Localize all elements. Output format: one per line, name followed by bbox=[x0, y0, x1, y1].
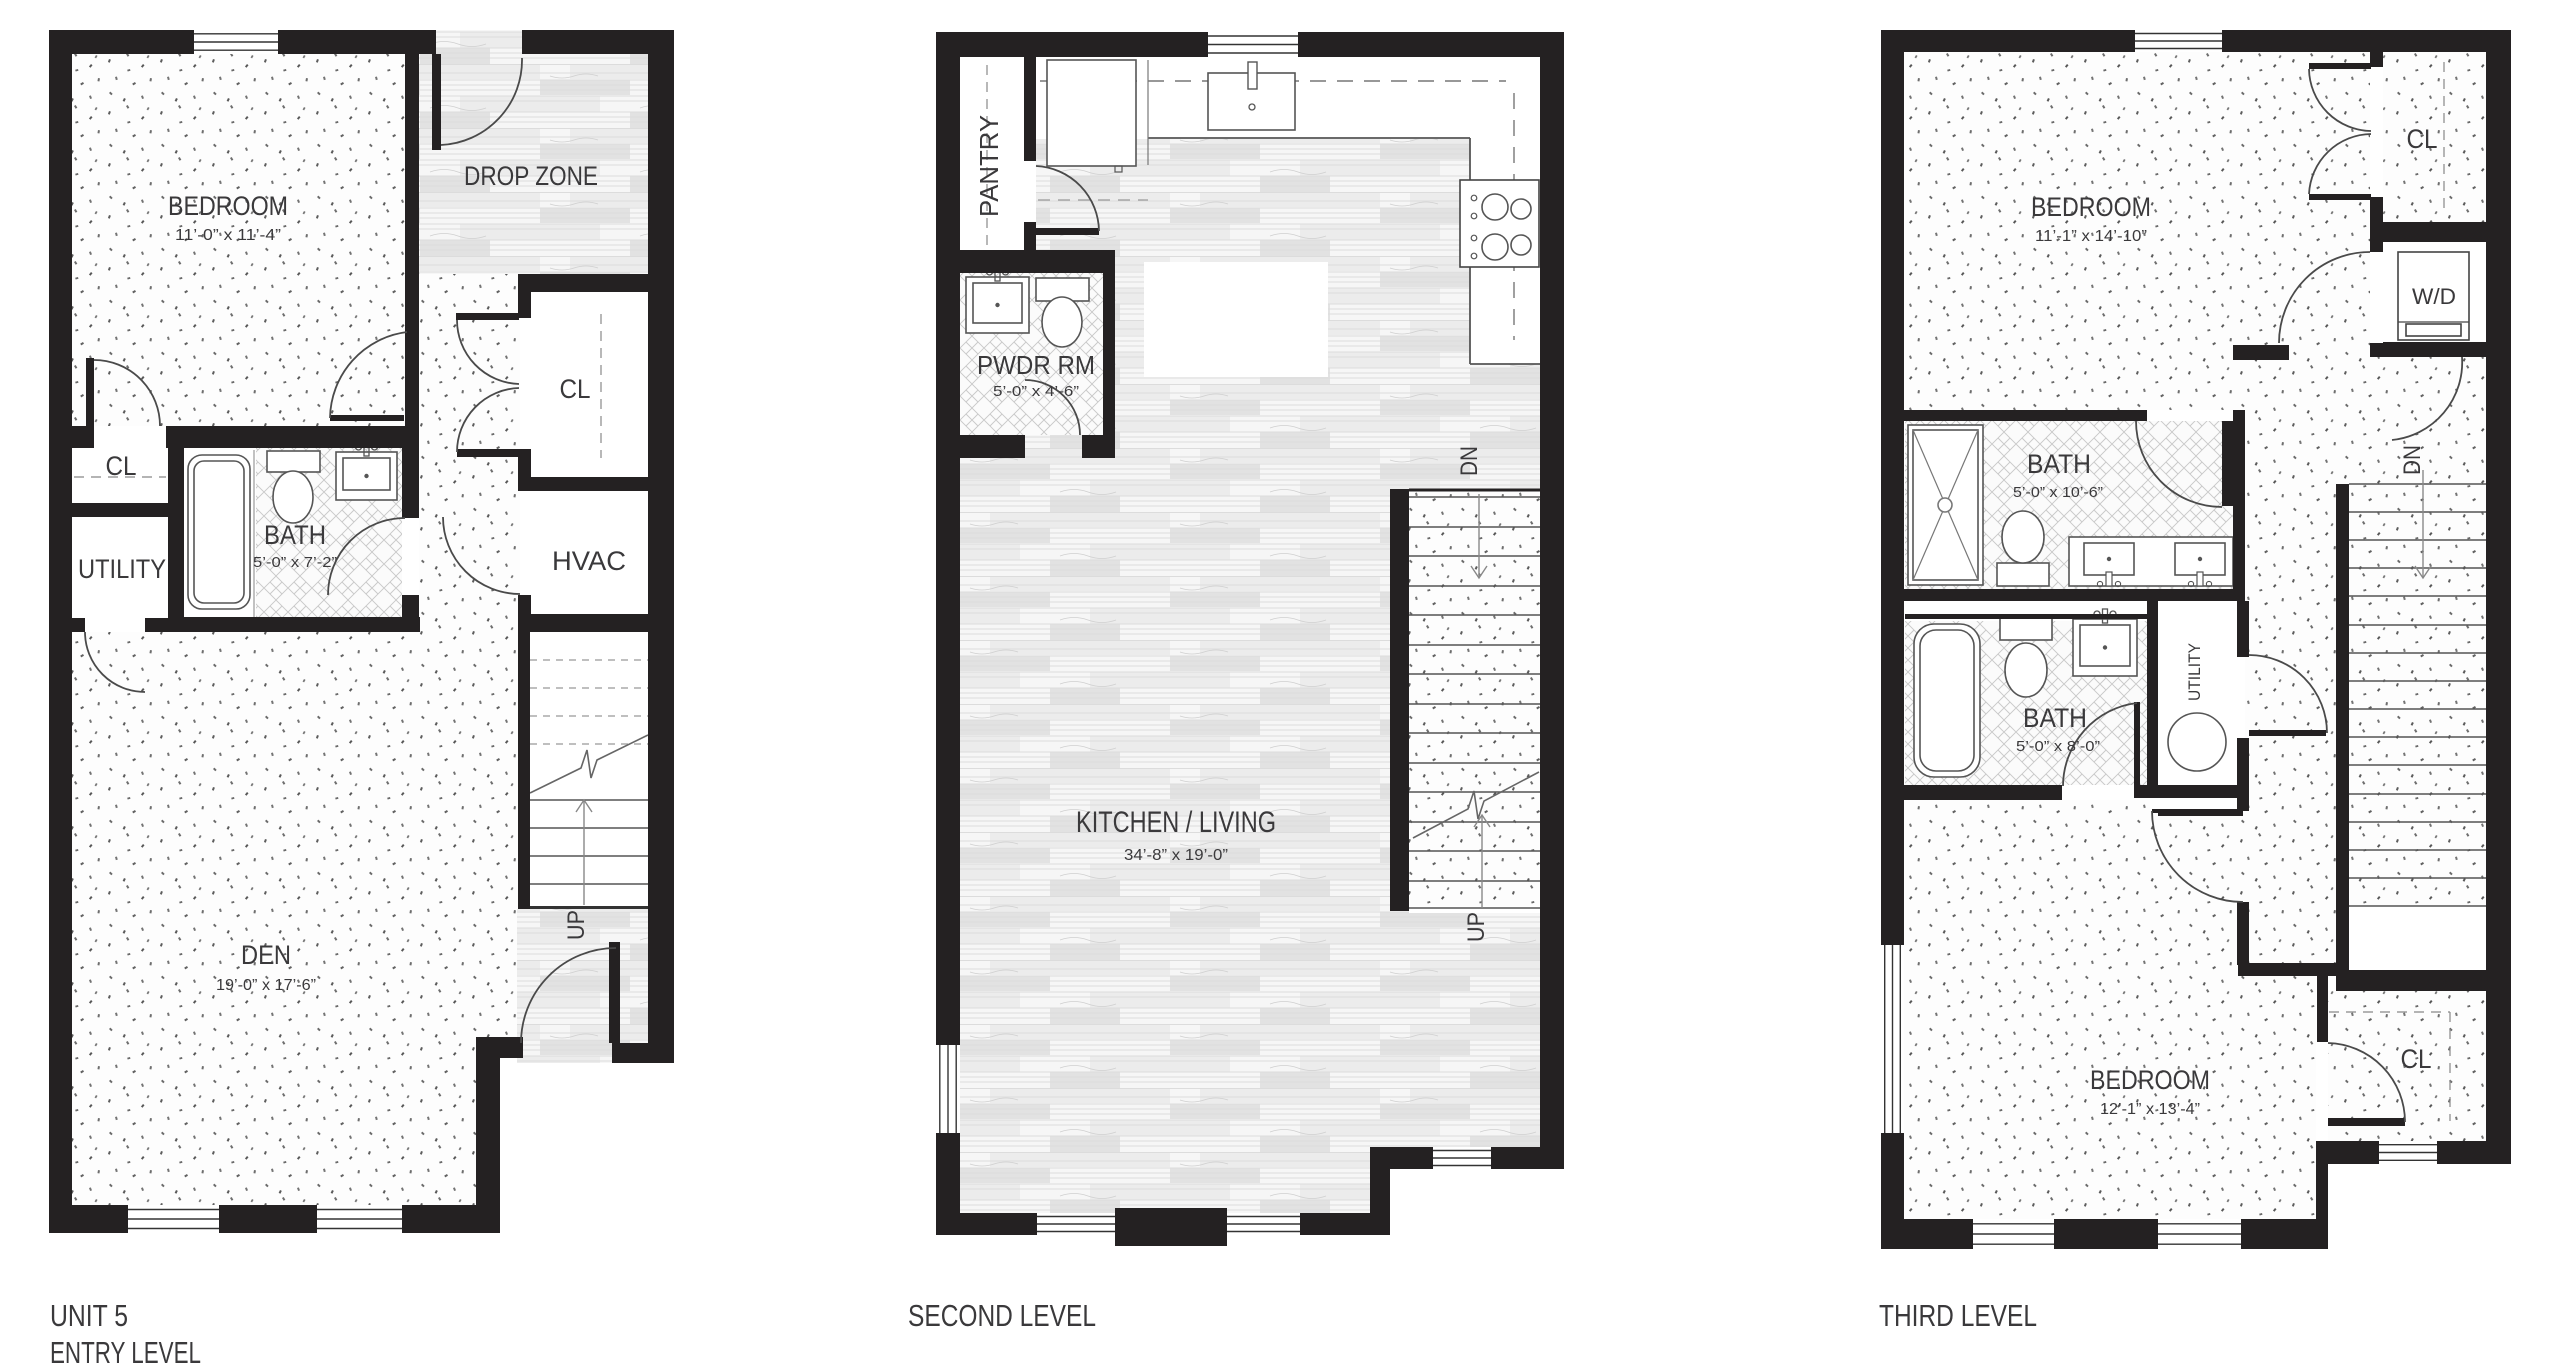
svg-text:BEDROOM: BEDROOM bbox=[168, 191, 288, 221]
svg-text:UTILITY: UTILITY bbox=[2185, 643, 2204, 701]
svg-text:THIRD LEVEL: THIRD LEVEL bbox=[1879, 1298, 2037, 1333]
svg-text:UTILITY: UTILITY bbox=[78, 554, 166, 584]
svg-text:KITCHEN / LIVING: KITCHEN / LIVING bbox=[1076, 806, 1276, 839]
svg-text:19’-0” x 17’-6”: 19’-0” x 17’-6” bbox=[216, 977, 316, 994]
svg-text:SECOND LEVEL: SECOND LEVEL bbox=[908, 1298, 1096, 1333]
svg-text:CL: CL bbox=[106, 451, 137, 481]
svg-text:ENTRY LEVEL: ENTRY LEVEL bbox=[50, 1335, 201, 1365]
svg-text:BATH: BATH bbox=[264, 520, 326, 550]
svg-text:UP: UP bbox=[563, 910, 590, 940]
svg-text:W/D: W/D bbox=[2412, 284, 2456, 309]
svg-text:UP: UP bbox=[1463, 912, 1490, 942]
svg-text:11’-0” x 11’-4”: 11’-0” x 11’-4” bbox=[175, 227, 281, 244]
svg-text:DROP ZONE: DROP ZONE bbox=[464, 161, 598, 191]
svg-text:HVAC: HVAC bbox=[552, 546, 626, 576]
svg-text:PWDR RM: PWDR RM bbox=[977, 350, 1095, 380]
svg-text:5’-0” x 8’-0”: 5’-0” x 8’-0” bbox=[2016, 738, 2100, 755]
svg-text:DEN: DEN bbox=[241, 940, 291, 970]
svg-text:12’-1” x 13’-4”: 12’-1” x 13’-4” bbox=[2100, 1101, 2200, 1118]
svg-text:CL: CL bbox=[560, 374, 591, 404]
svg-text:DN: DN bbox=[1456, 446, 1483, 476]
svg-text:5’-0” x 7’-2”: 5’-0” x 7’-2” bbox=[253, 554, 337, 571]
svg-text:5’-0” x 4’-6”: 5’-0” x 4’-6” bbox=[993, 383, 1079, 400]
svg-text:PANTRY: PANTRY bbox=[974, 115, 1004, 217]
svg-text:BEDROOM: BEDROOM bbox=[2031, 192, 2151, 222]
svg-text:BATH: BATH bbox=[2023, 703, 2087, 733]
svg-text:BEDROOM: BEDROOM bbox=[2090, 1065, 2210, 1095]
svg-text:11’-1” x 14’-10”: 11’-1” x 14’-10” bbox=[2035, 228, 2147, 245]
svg-text:BATH: BATH bbox=[2027, 449, 2091, 479]
svg-text:UNIT 5: UNIT 5 bbox=[50, 1298, 128, 1333]
svg-text:34’-8” x 19’-0”: 34’-8” x 19’-0” bbox=[1124, 847, 1228, 864]
svg-text:CL: CL bbox=[2401, 1044, 2432, 1074]
svg-text:CL: CL bbox=[2407, 124, 2438, 154]
svg-text:5’-0” x 10’-6”: 5’-0” x 10’-6” bbox=[2013, 484, 2103, 501]
svg-text:DN: DN bbox=[2399, 445, 2426, 475]
